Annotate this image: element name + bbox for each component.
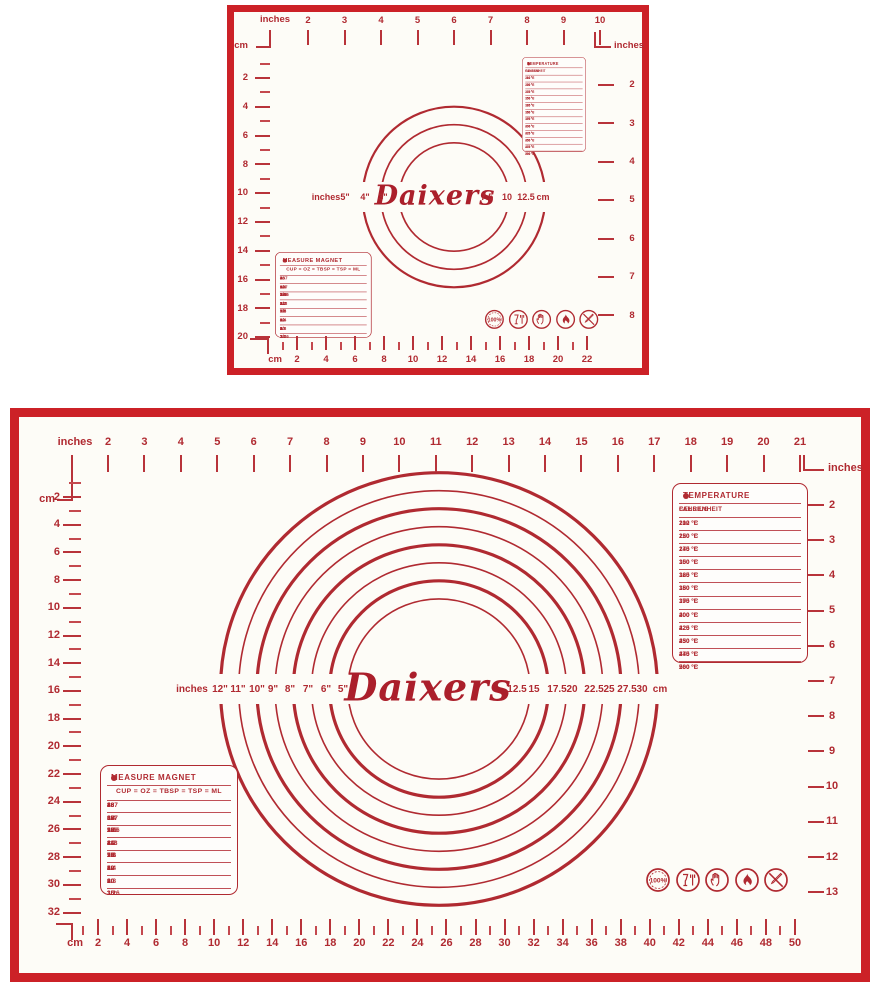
top-ruler-tick [435,455,437,472]
ring-diameter-label-cm: 27.5 [617,674,636,704]
bottom-ruler-minor-tick [228,926,230,935]
bottom-ruler-tick [591,919,593,935]
temperature-value: 190 °C [525,118,534,121]
left-ruler-number: 22 [48,769,60,780]
bottom-ruler-tick [412,336,414,350]
temperature-row: 300 °F150 °C [679,556,801,569]
top-ruler-number: 20 [757,437,769,448]
bottom-ruler-number: 20 [353,938,365,949]
bottom-ruler-tick [678,919,680,935]
table-title: TEMPERATURE [683,492,750,500]
bottom-ruler-minor-tick [286,926,288,935]
right-ruler-tick [808,891,824,893]
left-ruler-minor-tick [69,787,81,789]
temperature-value: 260 °C [679,665,698,671]
top-ruler-number: 2 [305,16,310,26]
left-ruler-tick [255,106,270,108]
bottom-ruler-number: 32 [527,938,539,949]
ring-diameter-label-cm: 15 [528,674,539,704]
left-ruler-number: 18 [237,304,248,314]
left-ruler-tick [63,607,81,609]
hand-safe-icon [531,309,552,330]
temperature-value: 160 °C [525,105,534,108]
temperature-value: 230 °C [525,139,534,142]
bottom-ruler-number: 28 [469,938,481,949]
bottom-ruler-number: 10 [208,938,220,949]
right-ruler-number: 7 [829,676,835,687]
top-ruler-tick [799,455,801,472]
left-ruler-number: 12 [48,630,60,641]
bottom-ruler-tick [387,919,389,935]
temperature-row: 350 °F180 °C [679,582,801,595]
temperature-row: 275 °F140 °C [679,543,801,556]
temperature-row: 300 °F150 °C [525,96,582,103]
right-ruler-number: 5 [829,605,835,616]
measure-row: 1/4241259 [280,316,367,324]
right-ruler-number: 12 [826,852,838,863]
bottom-ruler-minor-tick [170,926,172,935]
top-ruler-tick [398,455,400,472]
table-title-row: MEASURE MAGNET [280,255,367,265]
top-ruler-tick [216,455,218,472]
temperature-row: 400 °F200 °C [679,609,801,622]
brand-logo: Daixers [344,665,511,710]
food-safe-glass-fork-icon [508,309,529,330]
bottom-ruler-number: 12 [237,938,249,949]
temperature-value: 220 °C [525,132,534,135]
ring-diameter-label-cm: 10 [502,182,512,212]
temperature-value: 230 °C [679,639,698,645]
temperature-row: 450 °F230 °C [679,635,801,648]
measure-value: 118 [107,841,118,848]
ring-diameter-label-in: 7" [303,674,313,704]
left-ruler-minor-tick [69,648,81,650]
left-ruler-minor-tick [69,482,81,484]
bottom-ruler-number: 40 [644,938,656,949]
quality-100-percent-icon: 100% [484,309,505,330]
left-ruler-number: 26 [48,824,60,835]
bottom-ruler-minor-tick [427,342,429,350]
ring-diameter-label-cm: 20 [566,674,577,704]
measure-row: 1/32⅔5.31679 [107,850,231,863]
left-ruler-minor-tick [260,293,270,295]
bottom-ruler-tick [126,919,128,935]
top-ruler-number: 9 [360,437,366,448]
bottom-ruler-number: 16 [295,938,307,949]
measure-value: 158 [107,828,118,835]
temperature-value: 100 °C [679,521,698,527]
measure-value: 15 [107,891,114,898]
bottom-ruler-tick [354,336,356,350]
left-ruler-tick [63,524,81,526]
left-ruler-number: 28 [48,852,60,863]
ring-diameter-label-in: 10" [249,674,265,704]
left-ruler-minor-tick [260,120,270,122]
right-ruler-tick [598,238,614,240]
ring-diameter-label-in: 5" [338,674,348,704]
left-ruler-number: 10 [48,602,60,613]
temperature-value: 200 °C [679,613,698,619]
left-ruler-tick [63,884,81,886]
measure-value: 15 [280,335,285,339]
bottom-ruler-tick [736,919,738,935]
temperature-row: 500 °F260 °C [679,661,801,674]
bottom-ruler-number: 46 [731,938,743,949]
left-ruler-tick [255,221,270,223]
top-ruler-tick [180,455,182,472]
bottom-ruler-number: 50 [789,938,801,949]
left-ruler-number: 18 [48,713,60,724]
top-ruler-tick [526,30,528,45]
left-ruler-minor-tick [260,149,270,151]
bottom-ruler-minor-tick [721,926,723,935]
top-ruler-number: 21 [794,437,806,448]
no-sharp-utensils-icon [578,309,599,330]
top-ruler-number: 4 [178,437,184,448]
ring-unit-right: cm [653,674,667,704]
bottom-ruler-minor-tick [460,926,462,935]
right-ruler-number: 8 [829,711,835,722]
measure-value: 59 [280,319,285,323]
top-ruler-number: 13 [502,437,514,448]
left-ruler-tick [63,579,81,581]
measure-row: 2/35⅓10.632158 [107,825,231,838]
table-column-header: FAHRENHEITCELSIUS [525,68,582,75]
bottom-ruler-number: 8 [182,938,188,949]
temperature-row: 375 °F190 °C [525,116,582,123]
brand-logo: Daixers [375,180,496,211]
bottom-ruler-minor-tick [518,926,520,935]
table-column-header: CUP = OZ = TBSP = TSP = ML [280,265,367,275]
bottom-ruler-tick [325,336,327,350]
bottom-ruler-minor-tick [340,342,342,350]
top-ruler-tick [490,30,492,45]
measure-table: MEASURE MAGNETCUP = OZ = TBSP = TSP = ML… [100,765,238,895]
top-ruler-tick [726,455,728,472]
measure-row: 1/161/21315 [107,888,231,901]
left-ruler-number: 6 [54,547,60,558]
left-ruler-number: 2 [54,492,60,503]
left-ruler-minor-tick [69,815,81,817]
measure-value: 237 [107,803,118,810]
temperature-row: 500 °F260 °C [525,151,582,158]
bottom-ruler-minor-tick [572,342,574,350]
temperature-value: 120 °C [679,534,698,540]
top-ruler-tick [326,455,328,472]
hand-safe-icon [704,867,730,893]
bottom-ruler-number: 14 [466,355,477,365]
top-ruler-number: 8 [524,16,529,26]
right-ruler-tick [598,161,614,163]
top-ruler-number: 10 [393,437,405,448]
measure-value: 158 [280,294,288,298]
top-ruler-tick [580,455,582,472]
bottom-ruler-minor-tick [605,926,607,935]
top-ruler-number: 9 [561,16,566,26]
bottom-ruler-number: 18 [324,938,336,949]
measure-row: 1/24824118 [107,837,231,850]
bottom-ruler-minor-tick [779,926,781,935]
right-ruler-tick [808,821,824,823]
measure-row: 2/35⅓10.632158 [280,291,367,299]
left-ruler-number: 12 [237,217,248,227]
left-ruler-number: 8 [243,160,248,170]
bottom-ruler-minor-tick [692,926,694,935]
product-image-page: { "product": { "brand_script": "Daixers"… [0,0,879,986]
measure-value: 177 [280,285,288,289]
ring-diameter-label-cm: 30 [636,674,647,704]
right-ruler-tick [808,786,824,788]
bottom-ruler-number: 14 [266,938,278,949]
ring-diameter-label-cm: 12.5 [517,182,535,212]
left-ruler-minor-tick [260,178,270,180]
top-ruler-tick [307,30,309,45]
measure-value: 30 [107,879,114,886]
measure-value: 79 [107,853,114,860]
left-ruler-tick [63,773,81,775]
bottom-ruler-minor-tick [315,926,317,935]
top-ruler-number: 5 [415,16,420,26]
bottom-ruler-minor-tick [547,926,549,935]
bottom-ruler-number: 18 [524,355,535,365]
left-ruler-number: 14 [48,658,60,669]
bottom-ruler-minor-tick [431,926,433,935]
left-ruler-number: 4 [243,102,248,112]
flame-resistant-icon [734,867,760,893]
bottom-ruler-tick [184,919,186,935]
left-ruler-number: 32 [48,907,60,918]
ring-diameter-label-in: 5" [340,182,349,212]
temperature-row: 375 °F190 °C [679,596,801,609]
temperature-value: 240 °C [525,146,534,149]
left-ruler-number: 14 [237,246,248,256]
top-ruler-number: 3 [342,16,347,26]
left-ruler-minor-tick [69,565,81,567]
left-ruler-tick [63,745,81,747]
left-ruler-tick [255,77,270,79]
top-ruler-number: 6 [451,16,456,26]
top-ruler-number: 6 [251,437,257,448]
bottom-ruler-tick [707,919,709,935]
right-ruler-number: 9 [829,746,835,757]
left-ruler-minor-tick [69,898,81,900]
measure-row: 1/812630 [280,325,367,333]
top-ruler-number: 7 [488,16,493,26]
left-ruler-tick [255,336,270,338]
top-ruler-number: 12 [466,437,478,448]
top-ruler-tick [653,455,655,472]
safety-icons: 100% [645,867,789,893]
bottom-ruler-number: 6 [352,355,357,365]
bottom-ruler-tick [586,336,588,350]
table-title: TEMPERATURE [527,61,558,65]
bottom-ruler-tick [155,919,157,935]
left-ruler-tick [255,279,270,281]
bottom-ruler-tick [383,336,385,350]
bottom-ruler-number: 44 [702,938,714,949]
top-ruler-tick [362,455,364,472]
left-ruler-number: 20 [48,741,60,752]
ring-diameter-label-cm: 12.5 [507,674,526,704]
left-ruler-minor-tick [69,593,81,595]
temperature-value: 190 °C [679,599,698,605]
temperature-value: 220 °C [679,626,698,632]
temperature-row: 450 °F230 °C [525,137,582,144]
ring-diameter-label-in: 6" [321,674,331,704]
top-ruler-tick [107,455,109,472]
flame-resistant-icon [555,309,576,330]
bottom-ruler-minor-tick [456,342,458,350]
top-ruler-number: 16 [612,437,624,448]
left-ruler-tick [63,828,81,830]
bottom-ruler-minor-tick [344,926,346,935]
right-ruler-tick [598,314,614,316]
right-ruler-tick [808,715,824,717]
temperature-row: 275 °F140 °C [525,89,582,96]
quality-100-percent-icon: 100% [645,867,671,893]
bottom-ruler-tick [445,919,447,935]
temperature-row: 475 °F240 °C [679,648,801,661]
svg-text:100%: 100% [488,317,502,323]
left-ruler-number: 2 [243,73,248,83]
measure-row: 1/4241259 [107,862,231,875]
column-label: CELSIUS [525,70,539,73]
right-ruler-tick [808,645,824,647]
measure-value: 118 [280,302,287,306]
temperature-value: 140 °C [525,91,534,94]
large-pastry-mat: inches cm inches cm inches Daixers cm 12… [10,408,870,982]
bottom-ruler-number: 36 [586,938,598,949]
ring-label-band: inches Daixers cm 12"11"10"9"8"7"6"5"12.… [169,674,709,704]
bottom-ruler-number: 16 [495,355,506,365]
left-ruler-minor-tick [69,621,81,623]
left-ruler-minor-tick [69,676,81,678]
top-ruler-tick [544,455,546,472]
top-ruler-tick [563,30,565,45]
bottom-ruler-tick [794,919,796,935]
measure-value: 177 [107,816,118,823]
left-ruler-tick [255,192,270,194]
temperature-value: 260 °C [525,153,534,156]
ring-diameter-label-cm: 25 [603,674,614,704]
left-ruler-number: 6 [243,131,248,141]
top-ruler-tick [763,455,765,472]
bottom-ruler-minor-tick [543,342,545,350]
right-ruler-number: 4 [829,570,835,581]
bottom-ruler-tick [533,919,535,935]
right-ruler-number: 3 [829,535,835,546]
bottom-ruler-minor-tick [750,926,752,935]
ring-diameter-label-in: 11" [230,674,245,704]
top-ruler-tick [690,455,692,472]
ring-diameter-label-in: 4" [360,182,369,212]
bottom-ruler-tick [470,336,472,350]
top-ruler-tick [471,455,473,472]
left-ruler-tick [63,662,81,664]
right-ruler-number: 3 [629,119,634,129]
left-ruler-minor-tick [260,322,270,324]
temperature-table: TEMPERATUREFAHRENHEITCELSIUS212 °F100 °C… [672,483,808,663]
ring-label-band: inches Daixers cm 5"4"3"7.51012.5 [292,182,582,212]
bottom-ruler-tick [441,336,443,350]
left-ruler-minor-tick [69,759,81,761]
column-label: CUP = OZ = TBSP = TSP = ML [286,268,360,272]
top-ruler-number: 7 [287,437,293,448]
ring-diameter-label-in: 3" [378,182,387,212]
left-ruler-tick [63,801,81,803]
right-ruler-tick [808,610,824,612]
bottom-ruler-number: 24 [411,938,423,949]
measure-row: 181648237 [280,275,367,283]
bottom-ruler-tick [213,919,215,935]
top-ruler-tick [508,455,510,472]
top-ruler-tick [417,30,419,45]
left-ruler-number: 16 [237,275,248,285]
bottom-ruler-minor-tick [663,926,665,935]
bottom-ruler-tick [296,336,298,350]
measure-row: 1/32⅔5.31679 [280,308,367,316]
ring-diameter-label-in: 8" [285,674,295,704]
small-pastry-mat: inches cm inches cm inches Daixers cm 5"… [227,5,649,375]
left-ruler-tick [63,635,81,637]
top-ruler-number: 10 [595,16,606,26]
bottom-ruler-tick [358,919,360,935]
bottom-ruler-number: 4 [323,355,328,365]
bottom-ruler-tick [504,919,506,935]
measure-value: 59 [107,866,114,873]
bottom-ruler-minor-tick [199,926,201,935]
top-ruler-number: 4 [378,16,383,26]
bottom-ruler-number: 22 [382,938,394,949]
top-ruler-tick [344,30,346,45]
left-ruler-minor-tick [69,731,81,733]
right-ruler-tick [808,856,824,858]
temperature-value: 160 °C [679,573,698,579]
measure-value: 30 [280,327,285,331]
right-ruler-number: 5 [629,195,634,205]
top-ruler-number: 5 [214,437,220,448]
measure-row: 1/812630 [107,875,231,888]
left-ruler-tick [63,551,81,553]
measure-row: 1/24824118 [280,300,367,308]
bottom-ruler-minor-tick [398,342,400,350]
left-ruler-number: 20 [237,332,248,342]
top-ruler-number: 14 [539,437,551,448]
table-title-row: TEMPERATURE [679,488,801,503]
left-ruler-tick [63,690,81,692]
bottom-ruler-number: 20 [553,355,564,365]
left-ruler-minor-tick [69,704,81,706]
right-ruler-tick [808,539,824,541]
right-ruler-tick [808,750,824,752]
measure-row: 3/461236177 [107,812,231,825]
ring-unit-left: inches [176,674,208,704]
temperature-value: 180 °C [525,111,534,114]
bottom-ruler-minor-tick [82,926,84,935]
bottom-ruler-number: 42 [673,938,685,949]
top-ruler-number: 2 [105,437,111,448]
left-ruler-minor-tick [69,842,81,844]
bottom-ruler-number: 4 [124,938,130,949]
food-safe-glass-fork-icon [675,867,701,893]
bottom-ruler-tick [271,919,273,935]
right-ruler-number: 2 [629,80,634,90]
right-ruler-tick [808,574,824,576]
temperature-row: 250 °F120 °C [679,530,801,543]
right-ruler-number: 10 [826,781,838,792]
right-ruler-number: 6 [629,234,634,244]
left-ruler-number: 24 [48,796,60,807]
